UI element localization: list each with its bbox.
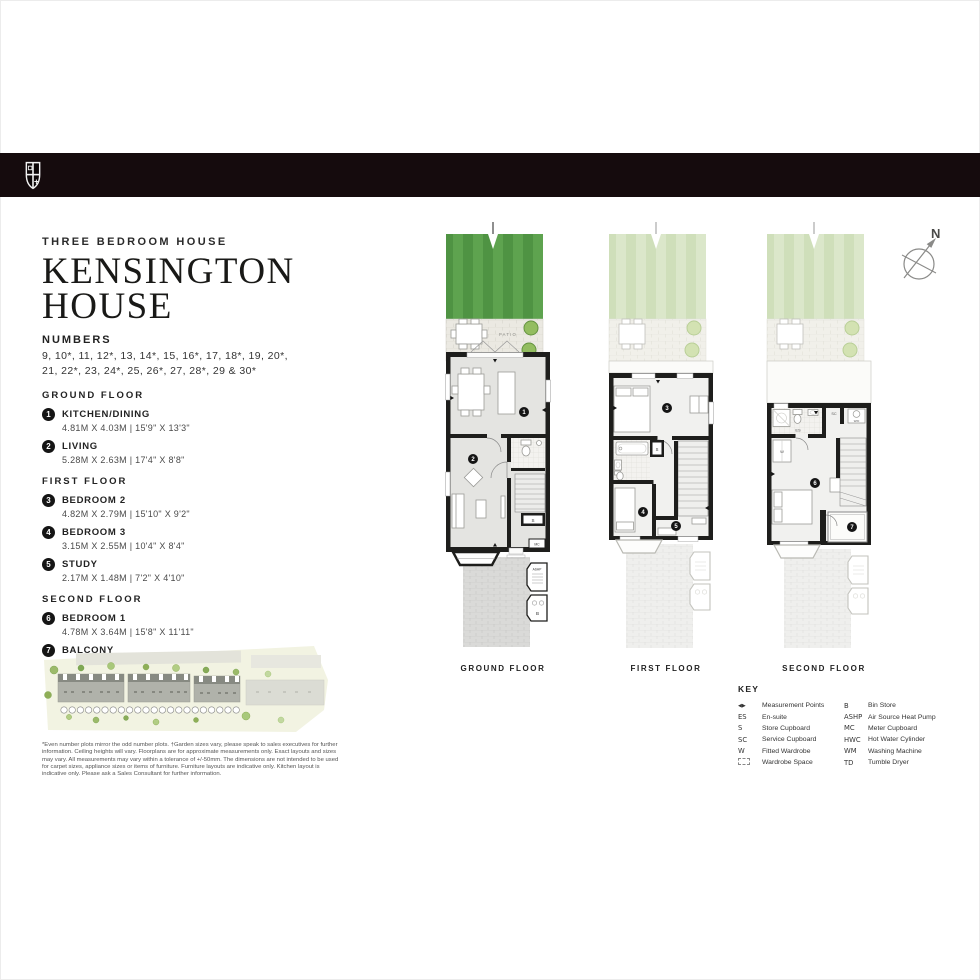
measurement-points-icon: ◀▶ <box>738 703 762 709</box>
brand-bar <box>0 153 980 197</box>
room-dims: 4.81M X 4.03M | 15'9" X 13'3" <box>62 423 372 433</box>
key-label: Washing Machine <box>868 748 922 755</box>
key-row: WM Washing Machine <box>844 746 970 757</box>
key-symbol-b: B <box>844 702 868 710</box>
room-dims: 4.78M X 3.64M | 15'8" X 11'11" <box>62 627 372 637</box>
room-marker-2: 2 <box>42 440 55 453</box>
bin-store-unit: B <box>527 595 547 621</box>
key-label: Meter Cupboard <box>868 725 917 732</box>
first-floor-plan: 3 S 4 <box>606 222 726 667</box>
room-dims: 4.82M X 2.79M | 15'10" X 9'2" <box>62 509 372 519</box>
room-dims: 3.15M X 2.55M | 10'4" X 8'4" <box>62 541 372 551</box>
ashp-unit: ASHP <box>527 563 547 591</box>
disclaimer-text: *Even number plots mirror the odd number… <box>42 742 344 778</box>
key-symbol-es: ES <box>738 713 762 721</box>
room-dims: 2.17M X 1.48M | 7'2" X 4'10" <box>62 573 372 583</box>
site-plan <box>36 640 336 740</box>
service-cupboard-label: SC <box>831 412 837 416</box>
plot-numbers-line1: 9, 10*, 11, 12*, 13, 14*, 15, 16*, 17, 1… <box>42 349 372 364</box>
key-symbol-s: S <box>738 724 762 732</box>
room-name: STUDY <box>62 559 98 570</box>
ground-floor-plan: PATIO 1 <box>443 222 563 667</box>
key-label: Fitted Wardrobe <box>762 748 810 755</box>
room-name: LIVING <box>62 441 98 452</box>
key-symbol-td: TD <box>844 759 868 767</box>
second-floor-plan: ES SC W/D W 6 7 <box>764 222 884 667</box>
key-row: ASHP Air Source Heat Pump <box>844 711 970 722</box>
key-symbol-wm: WM <box>844 747 868 755</box>
key-label: Measurement Points <box>762 702 824 709</box>
room-marker-6: 6 <box>42 612 55 625</box>
key-label: Wardrobe Space <box>762 759 813 766</box>
key-row: TD Tumble Dryer <box>844 757 970 768</box>
store-cupboard-label: S <box>531 518 534 523</box>
key-symbol-ashp: ASHP <box>844 713 868 721</box>
key-legend: KEY ◀▶ Measurement Points ES En-suite S … <box>738 684 970 768</box>
room-marker-5: 5 <box>42 558 55 571</box>
title-line-2: HOUSE <box>42 289 372 324</box>
key-column-left: ◀▶ Measurement Points ES En-suite S Stor… <box>738 700 844 768</box>
key-row: SC Service Cupboard <box>738 734 844 745</box>
plot-numbers: 9, 10*, 11, 12*, 13, 14*, 15, 16*, 17, 1… <box>42 349 372 379</box>
room-marker-4: 4 <box>42 526 55 539</box>
room-name: BEDROOM 2 <box>62 495 126 506</box>
key-row: ES En-suite <box>738 711 844 722</box>
room-name: BEDROOM 1 <box>62 613 126 624</box>
shield-crest-icon <box>25 161 41 190</box>
key-row: HWC Hot Water Cylinder <box>844 734 970 745</box>
room-row-study: 5 STUDY <box>42 558 372 571</box>
key-row: S Store Cupboard <box>738 723 844 734</box>
key-row: MC Meter Cupboard <box>844 723 970 734</box>
fitted-wardrobe-label: W <box>780 449 784 454</box>
room-row-living: 2 LIVING <box>42 440 372 453</box>
key-row: W Fitted Wardrobe <box>738 746 844 757</box>
key-symbol-sc: SC <box>738 736 762 744</box>
page-title: KENSINGTON HOUSE <box>42 254 372 324</box>
house-type-label: THREE BEDROOM HOUSE <box>42 236 372 248</box>
key-row: ◀▶ Measurement Points <box>738 700 844 711</box>
key-symbol-mc: MC <box>844 724 868 732</box>
numbers-heading: NUMBERS <box>42 334 372 346</box>
compass-north-label: N <box>931 226 940 241</box>
caption-ground-floor: GROUND FLOOR <box>438 664 568 673</box>
caption-second-floor: SECOND FLOOR <box>759 664 889 673</box>
section-second-floor: SECOND FLOOR <box>42 594 372 605</box>
floorplan-page: THREE BEDROOM HOUSE KENSINGTON HOUSE NUM… <box>0 0 980 980</box>
room-dims: 5.28M X 2.63M | 17'4" X 8'8" <box>62 455 372 465</box>
room-row-bedroom2: 3 BEDROOM 2 <box>42 494 372 507</box>
key-symbol-hwc: HWC <box>844 736 868 744</box>
key-heading: KEY <box>738 684 970 694</box>
title-line-1: KENSINGTON <box>42 254 372 289</box>
room-row-kitchen: 1 KITCHEN/DINING <box>42 408 372 421</box>
left-column: THREE BEDROOM HOUSE KENSINGTON HOUSE NUM… <box>42 236 372 669</box>
store-cupboard-label: S <box>656 447 659 452</box>
compass-icon: N <box>893 224 953 292</box>
bin-store-label: B <box>536 611 539 616</box>
key-label: Tumble Dryer <box>868 759 909 766</box>
section-first-floor: FIRST FLOOR <box>42 476 372 487</box>
washer-dryer-label: W/D <box>854 419 859 423</box>
room-row-bedroom3: 4 BEDROOM 3 <box>42 526 372 539</box>
room-name: KITCHEN/DINING <box>62 409 150 420</box>
key-row: B Bin Store <box>844 700 970 711</box>
wardrobe-space-icon <box>738 758 762 767</box>
key-label: Bin Store <box>868 702 896 709</box>
patio-label: PATIO <box>499 332 517 337</box>
room-marker-1: 1 <box>42 408 55 421</box>
room-row-bedroom1: 6 BEDROOM 1 <box>42 612 372 625</box>
room-name: BEDROOM 3 <box>62 527 126 538</box>
caption-first-floor: FIRST FLOOR <box>601 664 731 673</box>
key-label: Air Source Heat Pump <box>868 714 936 721</box>
key-label: Service Cupboard <box>762 736 816 743</box>
section-ground-floor: GROUND FLOOR <box>42 390 372 401</box>
room-marker-3: 3 <box>42 494 55 507</box>
key-label: En-suite <box>762 714 787 721</box>
bush <box>524 321 538 335</box>
plot-numbers-line2: 21, 22*, 23, 24*, 25, 26*, 27, 28*, 29 &… <box>42 364 372 379</box>
key-symbol-w: W <box>738 747 762 755</box>
key-label: Store Cupboard <box>762 725 810 732</box>
key-label: Hot Water Cylinder <box>868 736 925 743</box>
key-column-right: B Bin Store ASHP Air Source Heat Pump MC… <box>844 700 970 768</box>
ensuite-label: ES <box>795 428 801 433</box>
ashp-label: ASHP <box>533 568 542 572</box>
key-row: Wardrobe Space <box>738 757 844 768</box>
meter-cupboard-label: MC <box>534 543 540 547</box>
stairs <box>515 474 545 512</box>
